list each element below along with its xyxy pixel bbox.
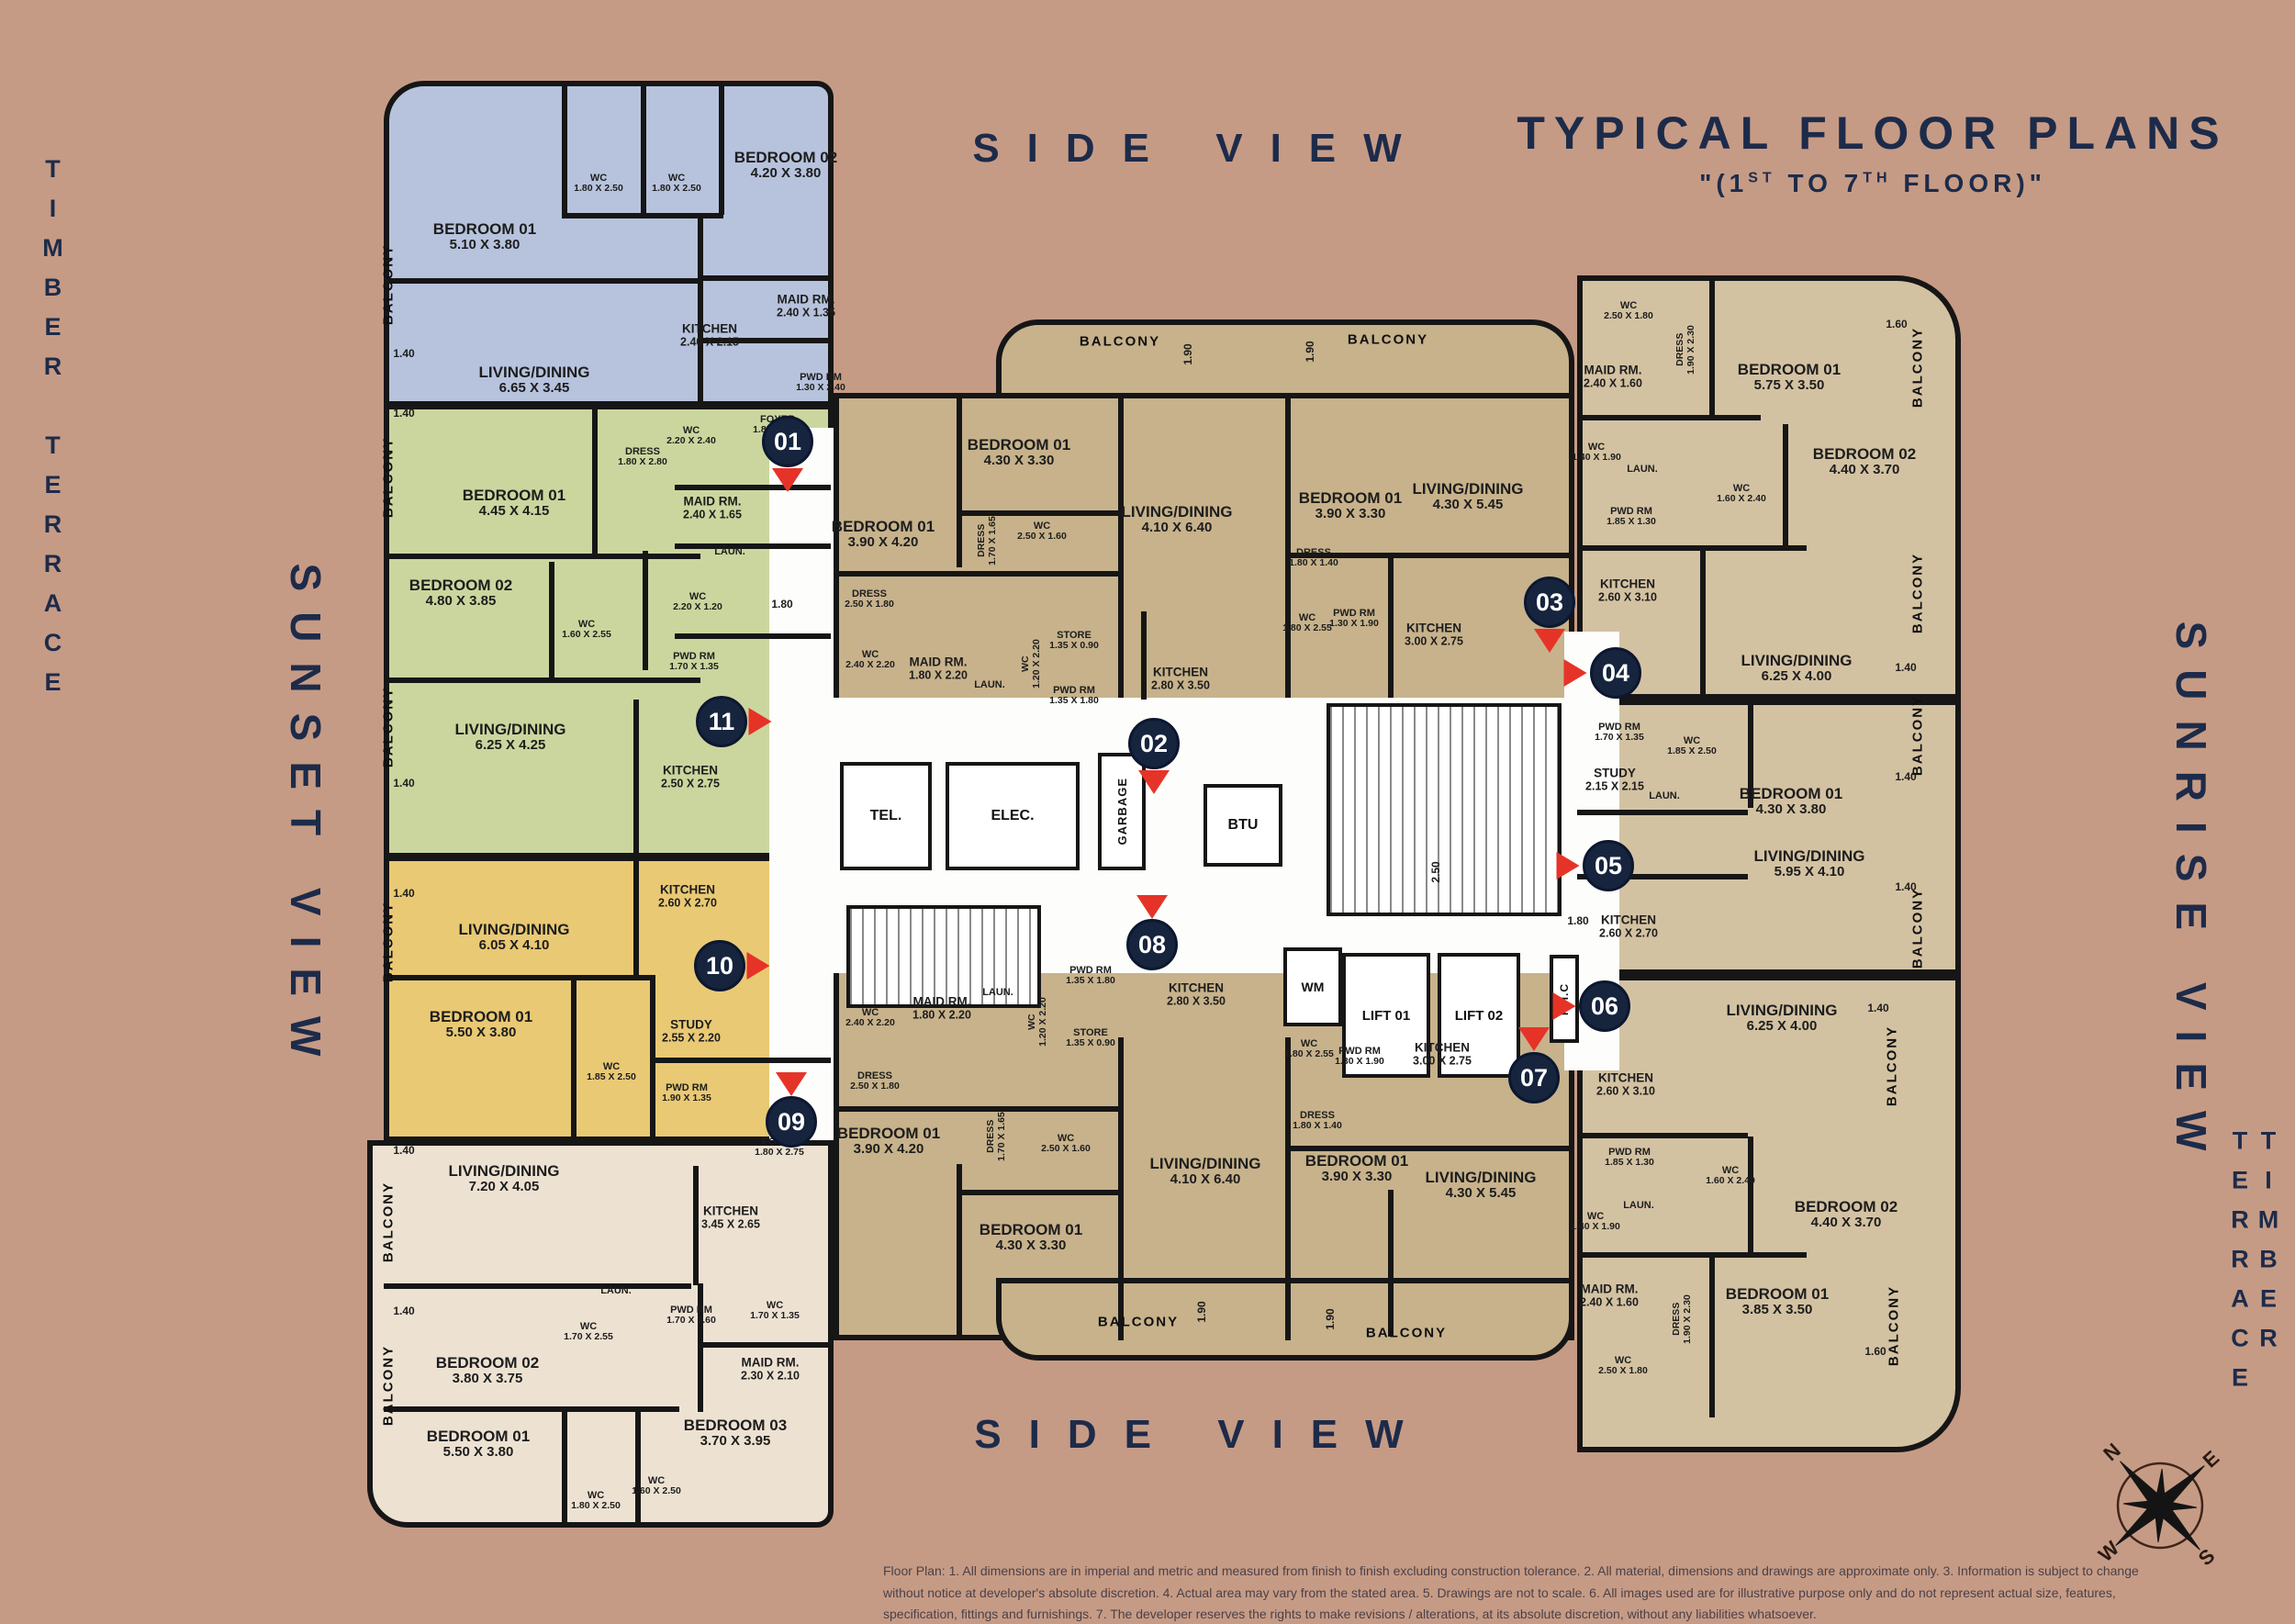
room-label: STUDY2.55 X 2.20 [662,1017,721,1044]
unit-marker-arrow-icon [1564,659,1587,687]
room-label: DRESS1.90 X 2.30 [1672,1294,1694,1344]
room-label: BEDROOM 014.30 X 3.30 [968,436,1070,469]
wall [957,393,962,567]
wall [562,81,567,218]
dimension-label: 1.40 [393,1305,414,1318]
dimension-label: 2.50 [1430,861,1443,882]
balcony-label: BALCONY [382,1345,397,1426]
room-label: LIVING/DINING6.25 X 4.00 [1741,652,1853,685]
wall [633,857,639,977]
dimension-label: 1.90 [1196,1301,1209,1322]
unit-marker-05: 05 [1583,840,1634,891]
room-label: KITCHEN3.45 X 2.65 [701,1204,760,1230]
room-label: BEDROOM 015.50 X 3.80 [430,1008,532,1041]
room-label: WC2.20 X 1.20 [673,591,722,613]
balcony-label: BALCONY [1098,1316,1179,1331]
room-label: BEDROOM 013.90 X 4.20 [832,518,935,551]
room-label: BEDROOM 013.90 X 3.30 [1299,489,1402,522]
wall [650,1058,831,1063]
wall [1388,554,1394,698]
room-label: WC1.40 X 1.90 [1572,442,1621,464]
room-label: LIVING/DINING6.65 X 3.45 [479,364,590,397]
balcony-label: BALCONY [382,437,397,518]
unit-marker-09: 09 [766,1096,817,1148]
room-label: BEDROOM 014.45 X 4.15 [463,487,565,520]
unit-marker-03: 03 [1524,577,1575,628]
room-label: WC1.80 X 2.55 [1282,612,1332,634]
room-label: BEDROOM 024.80 X 3.85 [409,577,512,610]
room-label: DRESS2.50 X 1.80 [850,1070,900,1092]
balcony-label: BALCONY [382,687,397,767]
room-label: WC1.80 X 2.50 [652,173,701,195]
room-label: PWD RM1.85 X 1.30 [1606,506,1656,528]
room-label: LAUN. [714,546,745,557]
room-label: WC2.50 X 1.80 [1598,1355,1648,1377]
wall [1285,393,1291,698]
unit-marker-arrow-icon [1557,852,1580,879]
room-label: LIVING/DINING4.10 X 6.40 [1150,1155,1261,1188]
unit-marker-arrow-icon [1518,1027,1550,1051]
wall [633,700,639,854]
room-label: WC1.70 X 1.35 [750,1300,800,1322]
room-label: DRESS1.70 X 1.65 [977,516,999,566]
room-label: LIVING/DINING7.20 X 4.05 [449,1162,560,1195]
room-label: MAID RM.2.40 X 1.60 [1584,363,1642,389]
wall [592,408,598,556]
wall [675,633,831,639]
room-label: DRESS1.90 X 2.30 [1675,325,1697,375]
wall [1388,1190,1394,1337]
room-label: WC2.50 X 1.80 [1604,300,1653,322]
unit-marker-04: 04 [1590,647,1641,699]
unit-marker-arrow-icon [772,468,803,492]
wall [1141,611,1147,700]
dimension-label: 1.90 [1325,1308,1338,1329]
dimension-label: 1.60 [1864,1346,1886,1359]
wall [1577,415,1761,420]
room-label: STORE1.35 X 0.90 [1049,630,1099,652]
room-label: KITCHEN2.60 X 3.10 [1598,577,1657,603]
wall [562,1406,567,1526]
room-label: KITCHEN2.60 X 2.70 [658,882,717,909]
room-label: KITCHEN2.50 X 2.75 [661,763,720,790]
tel-room: TEL. [840,762,932,870]
room-label: BEDROOM 023.80 X 3.75 [436,1354,539,1387]
floor-plan-page: TYPICAL FLOOR PLANS "(1ST TO 7TH FLOOR)"… [0,0,2295,1624]
unit-marker-arrow-icon [747,952,770,980]
dimension-label: 1.90 [1304,341,1317,362]
unit-marker-11: 11 [696,696,747,747]
staircase-top [1327,703,1562,916]
room-label: STORE1.35 X 0.90 [1066,1027,1115,1049]
room-label: WC1.85 X 2.50 [587,1061,636,1083]
unit-marker-arrow-icon [1534,629,1565,653]
wall [1577,1133,1748,1138]
room-label: DRESS1.70 X 1.65 [986,1112,1008,1161]
wall [1288,1146,1574,1151]
room-label: KITCHEN2.40 X 2.15 [680,321,739,348]
wall [834,571,1120,577]
dimension-label: 1.40 [393,348,414,361]
wall [1577,1252,1807,1258]
balcony-label: BALCONY [1911,553,1927,633]
room-label: LIVING/DINING4.30 X 5.45 [1413,480,1524,513]
room-label: LAUN. [974,679,1005,690]
wall [641,84,646,215]
unit-marker-07: 07 [1508,1052,1560,1103]
dimension-label: 1.90 [1182,343,1195,364]
room-label: BEDROOM 014.30 X 3.80 [1740,785,1842,818]
wall [701,275,831,281]
room-label: WC1.20 X 2.20 [1027,997,1049,1047]
wall [834,1106,1120,1112]
room-label: WC1.60 X 2.40 [1717,483,1766,505]
wall [635,1406,641,1526]
wall [1285,1037,1291,1340]
unit-04-block [1577,275,1961,700]
dimension-label: 1.40 [393,1145,414,1158]
room-label: MAID RM.2.30 X 2.10 [741,1355,800,1382]
unit-marker-06: 06 [1579,980,1630,1032]
room-label: WC1.60 X 2.55 [562,619,611,641]
room-label: MAID RM.1.80 X 2.20 [912,994,971,1021]
room-label: KITCHEN2.60 X 2.70 [1599,913,1658,939]
room-label: PWD RM1.85 X 1.30 [1605,1147,1654,1169]
room-label: WC1.80 X 2.50 [571,1490,621,1512]
wall [1700,549,1706,698]
room-label: DRESS2.50 X 1.80 [845,588,894,610]
room-label: WC2.20 X 2.40 [666,425,716,447]
room-label: LIVING/DINING5.95 X 4.10 [1754,847,1865,880]
wall [698,217,703,404]
room-label: PWD RM1.70 X 1.35 [1595,722,1644,744]
svg-text:W: W [2094,1536,2123,1566]
disclaimer-text: Floor Plan: 1. All dimensions are in imp… [883,1561,2159,1624]
room-label: LAUN. [600,1285,632,1296]
room-label: BEDROOM 015.75 X 3.50 [1738,361,1841,394]
room-label: PWD RM1.35 X 1.80 [1066,965,1115,987]
room-label: WC1.40 X 1.90 [1571,1211,1620,1233]
unit-marker-10: 10 [694,940,745,991]
wall [384,278,703,284]
wall [1709,1254,1715,1417]
room-label: KITCHEN2.80 X 3.50 [1151,665,1210,691]
room-label: DRESS1.80 X 2.80 [618,446,667,468]
room-label: WC1.70 X 2.55 [564,1321,613,1343]
room-label: PWD RM1.90 X 1.35 [662,1082,711,1104]
room-label: PWD RM1.70 X 1.35 [669,651,719,673]
unit-marker-arrow-icon [776,1072,807,1096]
room-label: BEDROOM 015.50 X 3.80 [427,1428,530,1461]
dimension-label: 1.40 [1895,771,1916,784]
balcony-label: BALCONY [382,902,397,982]
elec-room: ELEC. [946,762,1080,870]
wall [958,510,1120,516]
unit-marker-08: 08 [1126,919,1178,970]
room-label: LIVING/DINING4.30 X 5.45 [1426,1169,1537,1202]
top-balcony-strip [996,319,1574,398]
balcony-label: BALCONY [1887,1285,1903,1366]
balcony-label: BALCONY [1911,327,1927,408]
balcony-label: BALCONY [1366,1327,1447,1342]
room-label: KITCHEN2.80 X 3.50 [1167,980,1226,1007]
room-label: DRESS1.80 X 1.40 [1289,547,1338,569]
wall [675,485,831,490]
wall [384,975,650,980]
room-label: PWD RM1.35 X 1.80 [1049,685,1099,707]
wall [719,84,724,215]
compass-rose-icon: N E S W [2082,1428,2238,1584]
unit-marker-arrow-icon [1138,770,1170,794]
wall [1118,1037,1124,1340]
wall [1577,810,1748,815]
room-label: BEDROOM 013.90 X 4.20 [837,1125,940,1158]
wall [384,1283,691,1289]
room-label: WC2.40 X 2.20 [845,649,895,671]
unit-marker-arrow-icon [1553,992,1576,1020]
room-label: PWD RM1.30 X 1.90 [1335,1046,1384,1068]
dimension-label: 1.40 [393,778,414,790]
wall [698,1342,831,1348]
room-label: MAID RM.1.80 X 2.20 [909,655,968,681]
room-label: MAID RM.2.40 X 1.65 [683,494,742,521]
dimension-label: 1.80 [1567,915,1588,928]
corridor-left [769,428,834,1140]
balcony-label: BALCONY [1911,888,1927,969]
btu-room: BTU [1203,784,1282,867]
wall [549,562,554,679]
dimension-label: 1.40 [393,408,414,420]
room-label: PWD RM1.30 X 1.90 [1329,608,1379,630]
room-label: WC1.85 X 2.50 [1667,735,1717,757]
room-label: LIVING/DINING6.05 X 4.10 [459,921,570,954]
room-label: LAUN. [982,987,1013,998]
dimension-label: 1.80 [771,599,792,611]
room-label: BEDROOM 024.40 X 3.70 [1813,445,1916,478]
balcony-label: BALCONY [1886,1025,1901,1106]
room-label: LIVING/DINING6.25 X 4.25 [455,721,566,754]
room-label: BEDROOM 015.10 X 3.80 [433,220,536,253]
room-label: PWD RM1.30 X 2.40 [796,372,845,394]
room-label: LAUN. [1649,790,1680,801]
unit-marker-arrow-icon [1136,895,1168,919]
wall [384,554,700,559]
unit-06-block [1577,975,1961,1452]
room-label: LAUN. [1623,1200,1654,1211]
room-label: PWD RM1.70 X 1.60 [666,1305,716,1327]
room-label: WC1.80 X 2.50 [574,173,623,195]
room-label: BEDROOM 024.20 X 3.80 [734,149,837,182]
room-label: KITCHEN2.60 X 3.10 [1596,1070,1655,1097]
room-label: WC2.40 X 2.20 [845,1007,895,1029]
balcony-label: BALCONY [1080,335,1160,351]
room-label: LAUN. [1627,464,1658,475]
unit-10-block [384,856,834,1142]
room-label: BEDROOM 013.85 X 3.50 [1726,1285,1829,1318]
wall [675,543,831,549]
wm-room: WM [1283,947,1342,1026]
unit-marker-arrow-icon [749,708,772,735]
dimension-label: 1.60 [1886,319,1907,331]
room-label: WC1.60 X 2.50 [632,1475,681,1497]
room-label: BEDROOM 033.70 X 3.95 [684,1417,787,1450]
dimension-label: 1.40 [1895,881,1916,894]
wall [384,678,700,683]
wall [958,1190,1120,1195]
wall [571,975,577,1137]
room-label: WC1.20 X 2.20 [1021,639,1043,689]
room-label: KITCHEN3.00 X 2.75 [1413,1040,1472,1067]
balcony-label: BALCONY [1348,333,1428,349]
balcony-label: BALCONY [382,1182,397,1262]
room-label: WC1.80 X 2.55 [1284,1038,1334,1060]
dimension-label: 1.40 [1867,1002,1888,1015]
unit-marker-02: 02 [1128,718,1180,769]
wall [1577,545,1807,551]
wall [643,551,648,670]
balcony-label: BALCONY [382,244,397,325]
room-label: WC2.50 X 1.60 [1017,521,1067,543]
wall [1748,1137,1753,1252]
room-label: BEDROOM 013.90 X 3.30 [1305,1152,1408,1185]
wall [698,1283,703,1412]
room-label: BEDROOM 024.40 X 3.70 [1795,1198,1898,1231]
room-label: MAID RM.2.40 X 1.35 [777,292,835,319]
dimension-label: 1.40 [1895,662,1916,675]
balcony-label: BALCONY [1911,695,1927,776]
wall [1709,277,1715,417]
wall [650,975,655,1137]
wall [693,1166,699,1285]
room-label: LIVING/DINING4.10 X 6.40 [1122,503,1233,536]
room-label: KITCHEN3.00 X 2.75 [1405,621,1463,647]
room-label: DRESS1.80 X 1.40 [1293,1110,1342,1132]
room-label: STUDY2.15 X 2.15 [1585,766,1644,792]
room-label: LIVING/DINING6.25 X 4.00 [1727,1002,1838,1035]
dimension-label: 1.40 [393,888,414,901]
room-label: MAID RM.2.40 X 1.60 [1580,1282,1639,1308]
unit-marker-01: 01 [762,416,813,467]
room-label: BEDROOM 014.30 X 3.30 [980,1221,1082,1254]
room-label: WC1.60 X 2.40 [1706,1165,1755,1187]
wall [1118,393,1124,698]
wall [1783,424,1788,545]
room-label: WC2.50 X 1.60 [1041,1133,1091,1155]
